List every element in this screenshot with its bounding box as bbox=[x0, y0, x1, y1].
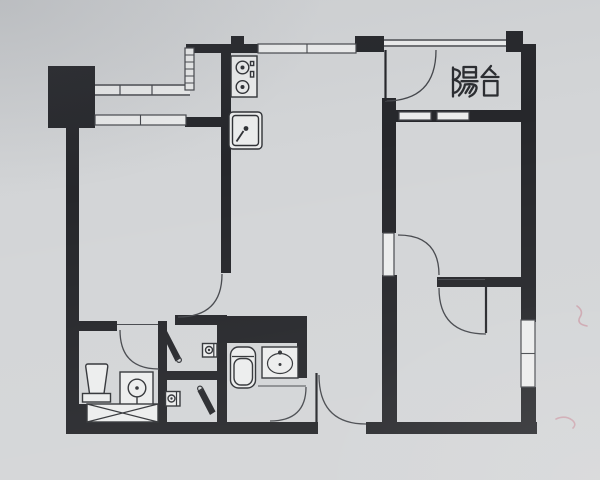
toilet-1-icon bbox=[83, 364, 111, 402]
bedroom2-door-leaf-panel bbox=[383, 233, 394, 276]
balcony-window-1 bbox=[399, 112, 431, 120]
bottom-wall-right bbox=[366, 422, 537, 434]
balcony-label bbox=[453, 66, 499, 97]
wc-lower-door bbox=[198, 386, 216, 415]
bay-vertical-window bbox=[185, 48, 194, 90]
bedroom1-window bbox=[95, 115, 186, 125]
balcony-label-stroke bbox=[484, 81, 498, 96]
balcony-label-stroke bbox=[490, 69, 496, 75]
pen-marks bbox=[556, 306, 587, 428]
entry-door-arc bbox=[319, 375, 366, 424]
bay-upper-band bbox=[95, 84, 190, 96]
washer-area-icon bbox=[87, 404, 158, 422]
balcony-door-arc bbox=[385, 50, 436, 101]
kitchen-wall-bump bbox=[231, 36, 244, 44]
stove-icon bbox=[231, 56, 257, 97]
top-pillar-mid bbox=[355, 36, 384, 52]
pen-mark-2 bbox=[556, 417, 575, 428]
left-exterior-wall bbox=[66, 120, 79, 434]
bottom-wall-left bbox=[66, 422, 318, 434]
right-exterior-wall-lower bbox=[521, 387, 536, 434]
top-pillar-right bbox=[506, 31, 523, 52]
bathroom1-top-wall bbox=[79, 321, 117, 331]
wc-upper-sink-icon bbox=[203, 344, 218, 358]
pillar-top-left bbox=[48, 66, 95, 128]
laundry-corner-block bbox=[66, 404, 87, 422]
balcony-window-2 bbox=[437, 112, 469, 120]
balcony-label-stroke bbox=[482, 66, 491, 77]
wall-under-bay bbox=[185, 117, 231, 127]
wc-lower-sink-icon bbox=[166, 392, 181, 407]
toilet-2-icon bbox=[231, 347, 256, 388]
kitchen-divider-wall bbox=[221, 44, 231, 273]
wc-right-wall bbox=[217, 315, 227, 422]
living-divider-lower bbox=[382, 275, 397, 422]
bathroom2-sink-icon bbox=[262, 347, 298, 378]
wc-divider-wall bbox=[158, 371, 227, 380]
bedroom3-window bbox=[521, 320, 535, 387]
bedroom2-bottom-wall bbox=[437, 277, 527, 287]
bathroom1-door-arc bbox=[120, 330, 159, 369]
living-divider-upper bbox=[382, 98, 396, 233]
bathroom2-door-arc bbox=[270, 387, 306, 421]
pen-mark-1 bbox=[577, 306, 587, 326]
bedroom3-door-arc bbox=[439, 288, 486, 334]
floor-plan-canvas bbox=[0, 0, 600, 480]
fixtures bbox=[83, 56, 299, 422]
balcony-railing bbox=[384, 39, 506, 47]
bathroom2-top-slab bbox=[227, 316, 307, 343]
shower-drain-icon bbox=[120, 372, 153, 406]
floor-plan: 陽台 bbox=[0, 0, 600, 480]
bedroom2-door-arc bbox=[398, 235, 439, 275]
kitchen-top-window bbox=[258, 44, 356, 53]
bedroom1-door-arc bbox=[178, 274, 222, 317]
kitchen-sink-icon bbox=[229, 112, 262, 149]
